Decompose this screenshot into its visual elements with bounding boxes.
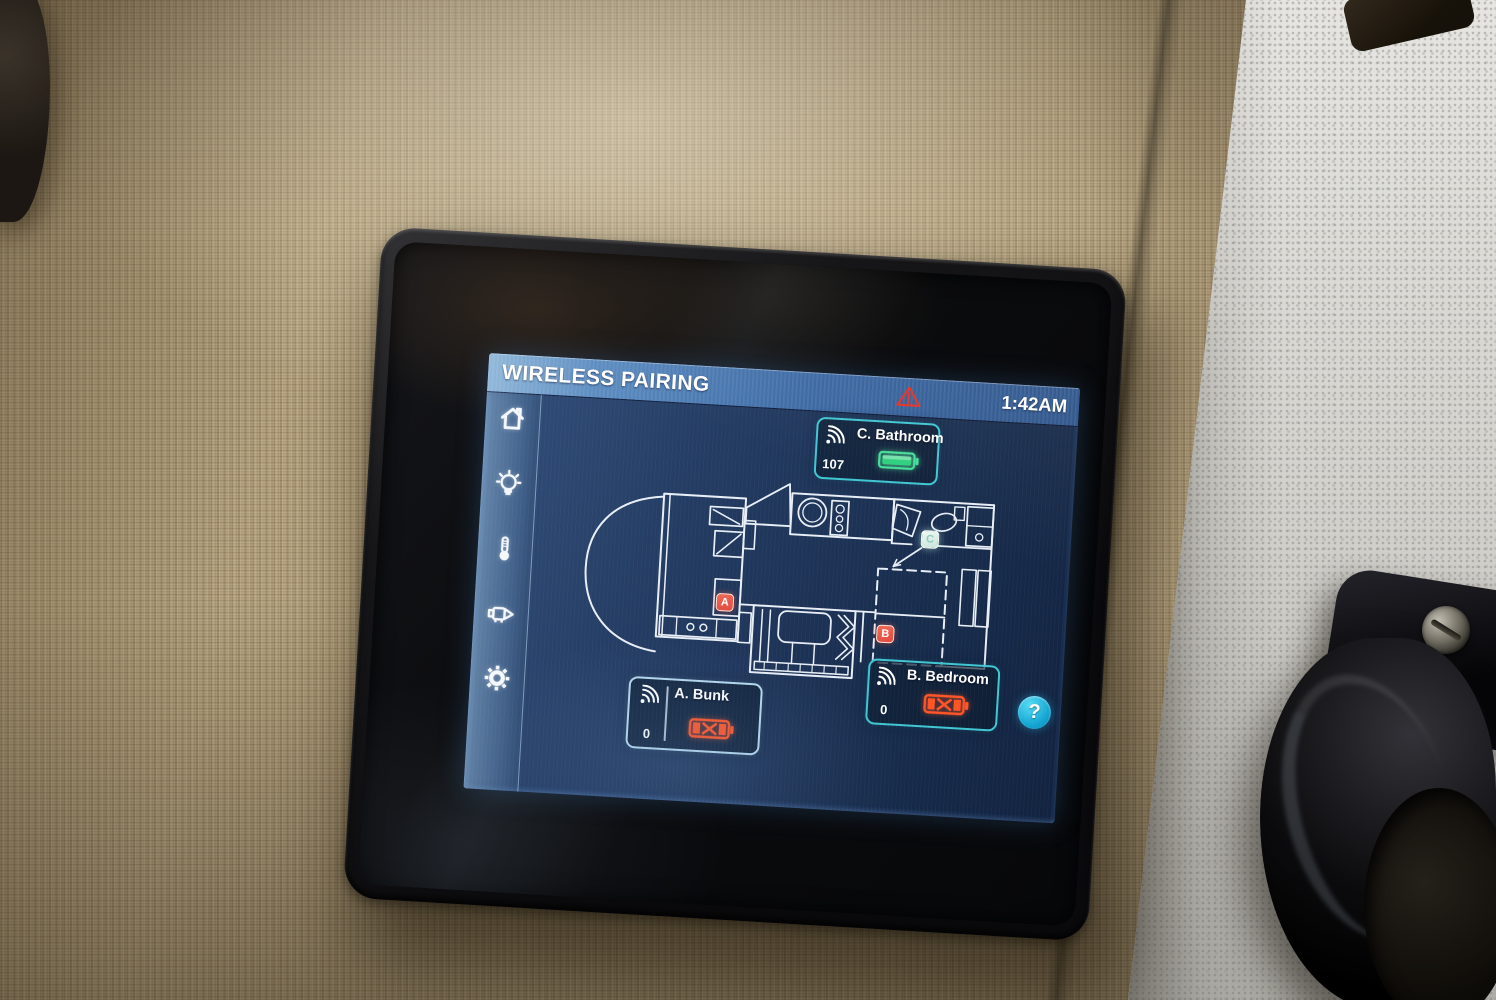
screen-body: A B C bbox=[463, 391, 1078, 823]
gear-icon bbox=[482, 663, 512, 696]
handle-opening bbox=[1364, 788, 1496, 1000]
signal-icon bbox=[824, 425, 845, 446]
thermometer-icon bbox=[491, 535, 519, 565]
battery-missing-icon bbox=[922, 693, 969, 721]
sensor-label: B. Bedroom bbox=[906, 667, 989, 688]
photo-scene: WIRELESS PAIRING 1:42AM bbox=[0, 0, 1496, 1000]
sidebar-item-pump[interactable] bbox=[480, 595, 522, 634]
sensor-label: A. Bunk bbox=[674, 686, 730, 705]
sidebar-item-settings[interactable] bbox=[476, 660, 518, 699]
touchscreen-display[interactable]: WIRELESS PAIRING 1:42AM bbox=[463, 353, 1080, 823]
water-pump-icon bbox=[485, 597, 517, 632]
pairing-map-area: A B C bbox=[518, 394, 1078, 823]
sidebar-item-lighting[interactable] bbox=[487, 465, 529, 504]
signal-strength: 0 bbox=[880, 703, 888, 716]
battery-full-icon bbox=[877, 450, 920, 475]
lightbulb-icon bbox=[494, 469, 524, 502]
battery-missing-icon bbox=[687, 717, 734, 745]
card-divider bbox=[849, 427, 852, 472]
sensor-info: C. Bathroom bbox=[855, 426, 947, 478]
help-button[interactable]: ? bbox=[1017, 695, 1052, 730]
card-divider bbox=[898, 668, 901, 717]
signal-strength: 107 bbox=[822, 457, 844, 471]
black-grab-handle bbox=[1252, 580, 1496, 1000]
home-icon bbox=[496, 403, 528, 438]
card-divider bbox=[664, 686, 669, 741]
sensor-card-a-bunk[interactable]: 0 A. Bunk bbox=[625, 676, 763, 756]
page-title: WIRELESS PAIRING bbox=[501, 361, 710, 397]
signal-strength: 0 bbox=[642, 727, 650, 740]
signal-column: 107 bbox=[822, 424, 846, 472]
sensor-info: A. Bunk bbox=[671, 686, 753, 748]
sensor-card-b-bedroom[interactable]: 0 B. Bedroom bbox=[865, 658, 1001, 732]
signal-icon bbox=[875, 667, 896, 688]
signal-icon bbox=[638, 685, 659, 706]
sensor-marker-b: B bbox=[876, 624, 895, 643]
sensor-label: C. Bathroom bbox=[856, 426, 944, 447]
handle-arm bbox=[1260, 638, 1496, 1000]
sensor-card-c-bathroom[interactable]: 107 C. Bathroom bbox=[813, 417, 940, 486]
warning-triangle-icon bbox=[895, 384, 923, 409]
sensor-marker-a: A bbox=[715, 593, 734, 612]
tablet-device: WIRELESS PAIRING 1:42AM bbox=[343, 226, 1128, 941]
clock-time: 1:42AM bbox=[1001, 392, 1068, 418]
signal-column: 0 bbox=[873, 666, 896, 718]
tablet-glass: WIRELESS PAIRING 1:42AM bbox=[358, 241, 1113, 926]
sensor-info: B. Bedroom bbox=[904, 667, 991, 723]
sidebar-item-climate[interactable] bbox=[484, 530, 526, 569]
sensor-marker-c: C bbox=[920, 530, 939, 549]
signal-column: 0 bbox=[634, 683, 662, 741]
sidebar-item-home[interactable] bbox=[491, 400, 533, 439]
